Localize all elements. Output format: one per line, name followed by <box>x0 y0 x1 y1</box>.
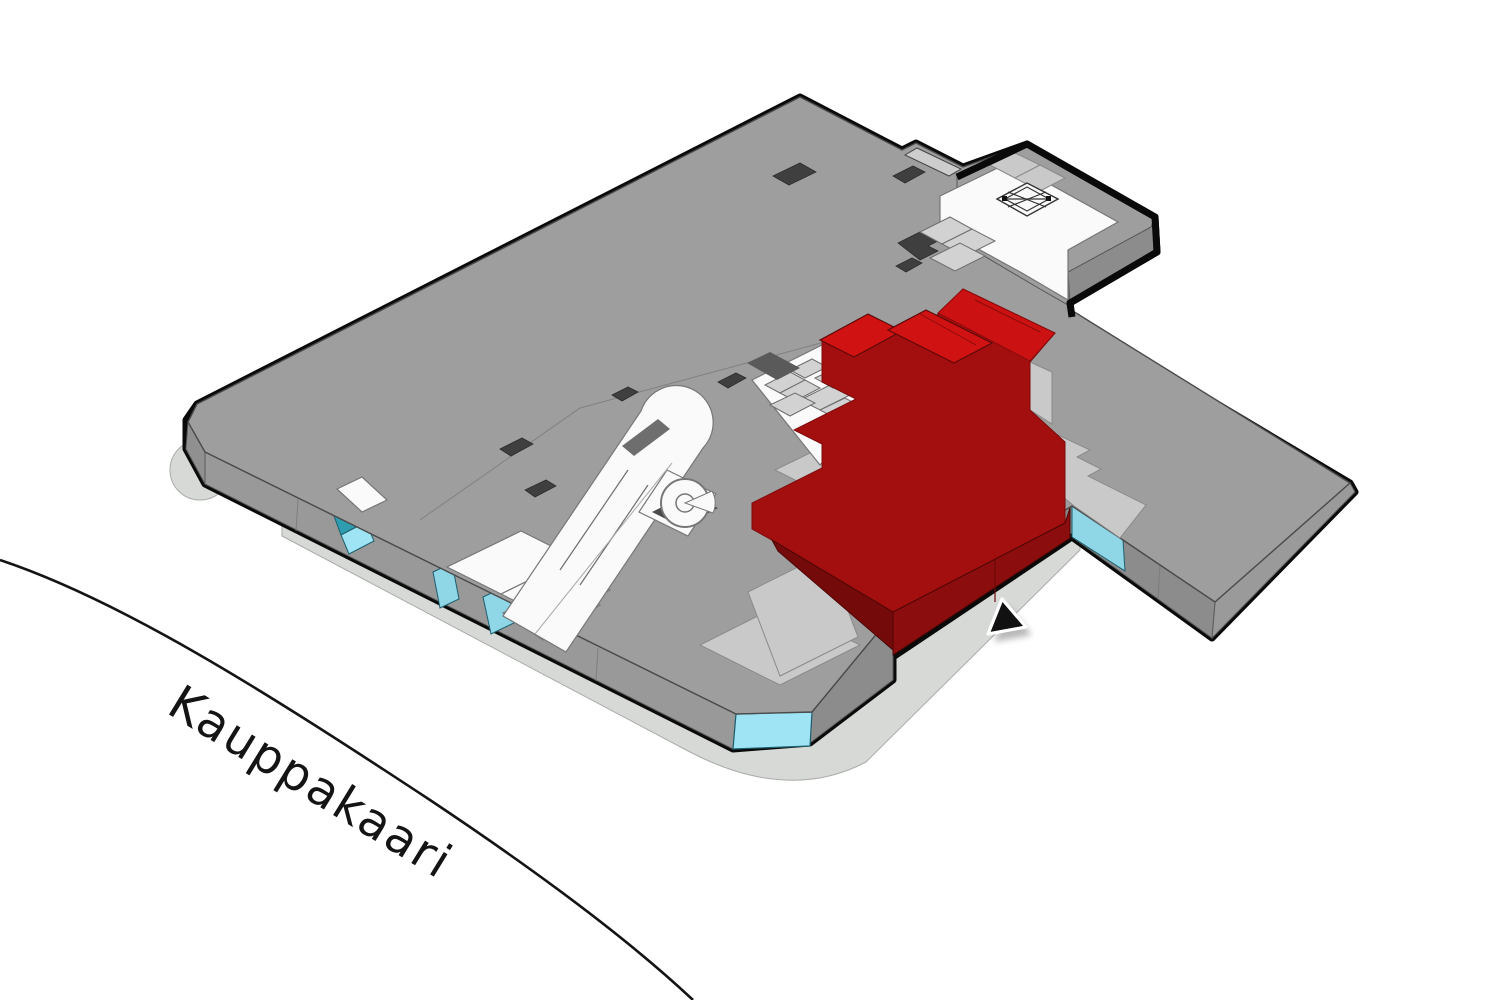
floorplan-svg: Kauppakaari <box>0 0 1500 1000</box>
elevator-dot <box>1002 196 1007 201</box>
entrance-south-corner-icon <box>733 712 812 749</box>
street-label: Kauppakaari <box>159 674 463 890</box>
floorplan-canvas: Kauppakaari <box>0 0 1500 1000</box>
elevator-dot <box>1046 196 1051 201</box>
